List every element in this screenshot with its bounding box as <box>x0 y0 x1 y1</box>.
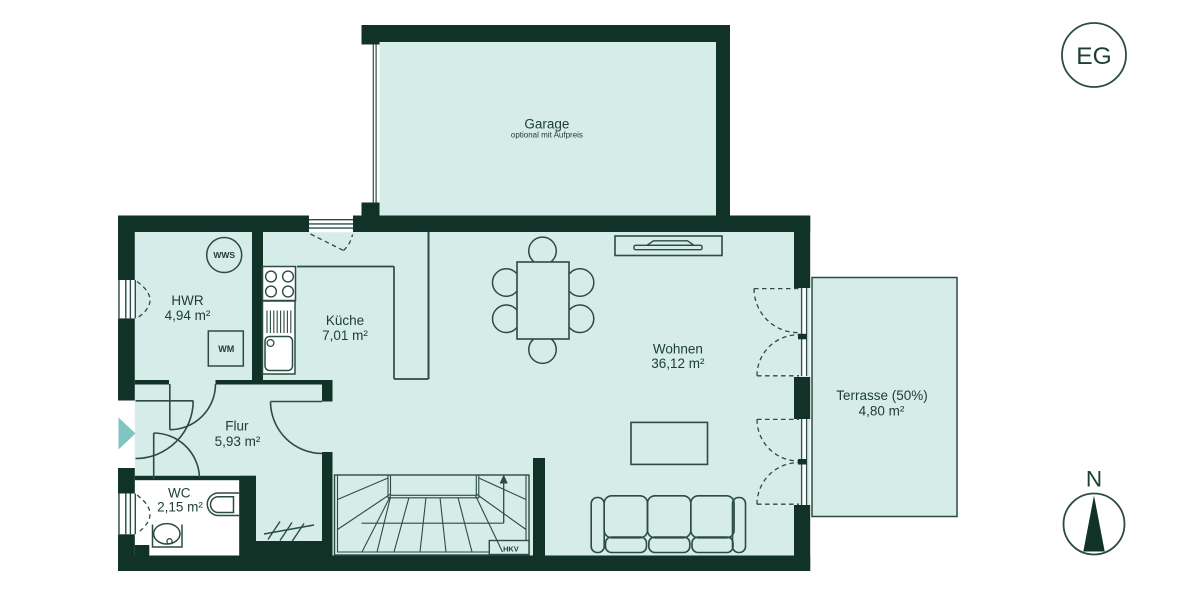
svg-text:Wohnen: Wohnen <box>653 342 703 357</box>
svg-text:2,15 m²: 2,15 m² <box>157 500 203 515</box>
svg-text:HWR: HWR <box>171 293 203 308</box>
svg-text:EG: EG <box>1076 43 1111 70</box>
svg-text:5,93 m²: 5,93 m² <box>215 434 261 449</box>
svg-text:optional mit Aufpreis: optional mit Aufpreis <box>511 131 583 140</box>
svg-text:7,01 m²: 7,01 m² <box>322 328 368 343</box>
svg-text:WWS: WWS <box>213 250 235 260</box>
svg-text:N: N <box>1086 467 1102 492</box>
svg-text:4,94 m²: 4,94 m² <box>165 308 211 323</box>
svg-text:Terrasse (50%): Terrasse (50%) <box>836 388 928 403</box>
svg-text:Garage: Garage <box>524 117 569 132</box>
svg-text:Küche: Küche <box>326 313 364 328</box>
svg-text:Flur: Flur <box>225 418 249 433</box>
svg-text:HKV: HKV <box>503 544 519 553</box>
svg-text:4,80 m²: 4,80 m² <box>859 404 905 419</box>
svg-text:36,12 m²: 36,12 m² <box>651 356 705 371</box>
svg-text:WC: WC <box>168 485 191 500</box>
svg-text:WM: WM <box>218 344 234 354</box>
